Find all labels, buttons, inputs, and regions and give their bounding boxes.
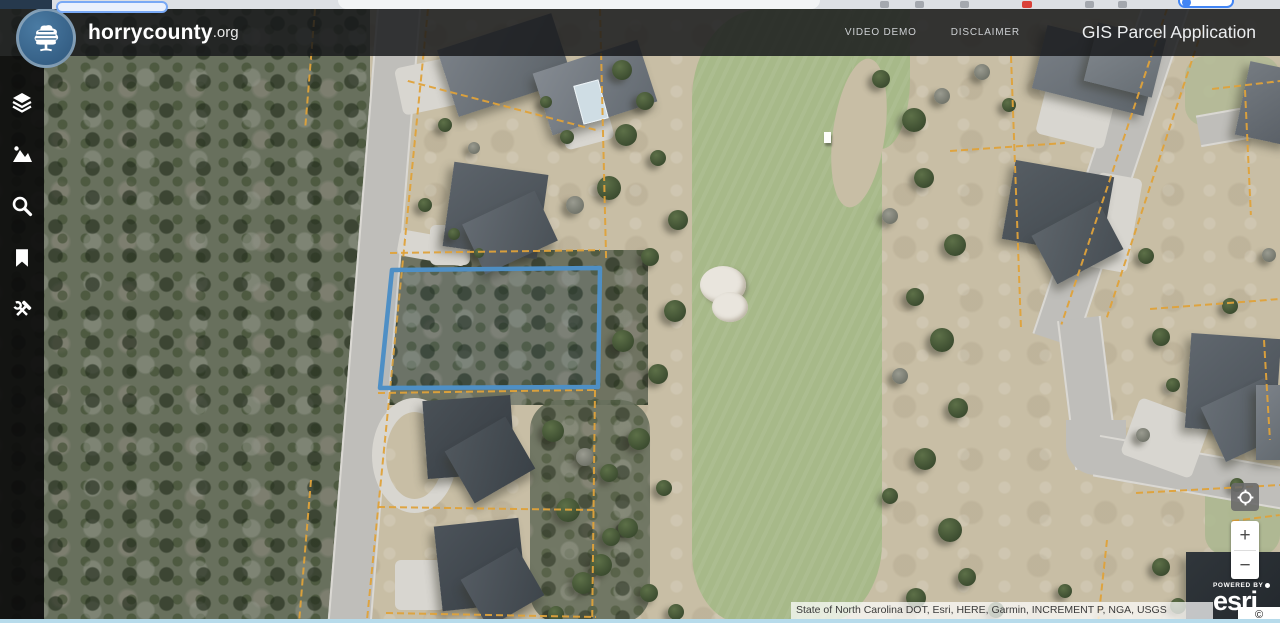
nav-video-demo[interactable]: VIDEO DEMO	[845, 27, 917, 38]
brand-name: horrycounty	[88, 21, 213, 45]
browser-extension-icon[interactable]	[915, 1, 924, 8]
locate-icon	[1237, 489, 1254, 506]
map-attribution: State of North Carolina DOT, Esri, HERE,…	[791, 602, 1213, 619]
selected-parcel-outline[interactable]	[370, 245, 610, 400]
browser-tab-pill[interactable]	[56, 1, 168, 13]
tools-icon	[10, 298, 34, 322]
zoom-in-button[interactable]: +	[1231, 521, 1259, 550]
profile-dot-icon	[1182, 0, 1191, 7]
globe-dot-icon	[1265, 583, 1270, 588]
browser-extension-icon[interactable]	[1022, 1, 1032, 8]
sidebar-tool-bookmarks[interactable]	[0, 238, 44, 278]
browser-extension-icon[interactable]	[960, 1, 969, 8]
brand[interactable]: horrycounty.org	[88, 9, 239, 56]
basemap-icon	[10, 142, 34, 166]
browser-tab-edge	[0, 0, 52, 9]
sidebar-tool-utilities[interactable]	[0, 290, 44, 330]
header-nav: VIDEO DEMO DISCLAIMER GIS Parcel Applica…	[845, 9, 1256, 56]
browser-extension-icon[interactable]	[1085, 1, 1094, 8]
layers-icon	[10, 90, 34, 114]
sidebar-tool-layers[interactable]	[0, 82, 44, 122]
browser-toolbar-sliver	[0, 0, 1280, 9]
golf-cart	[824, 132, 831, 143]
map-canvas[interactable]	[0, 9, 1280, 623]
gis-parcel-application: horrycounty.org VIDEO DEMO DISCLAIMER GI…	[0, 0, 1280, 623]
nav-disclaimer[interactable]: DISCLAIMER	[951, 27, 1020, 38]
bookmark-icon	[11, 246, 33, 270]
app-header: horrycounty.org VIDEO DEMO DISCLAIMER GI…	[0, 9, 1280, 56]
oak-tree-icon	[27, 19, 65, 57]
sidebar-tool-search[interactable]	[0, 186, 44, 226]
browser-address-bar[interactable]	[338, 0, 820, 9]
horry-county-logo[interactable]	[16, 8, 76, 68]
tool-sidebar	[0, 56, 44, 623]
browser-extension-icon[interactable]	[880, 1, 889, 8]
browser-profile-pill[interactable]	[1178, 0, 1234, 8]
search-icon	[10, 194, 34, 218]
sidebar-tool-basemap[interactable]	[0, 134, 44, 174]
viewport-bottom-edge	[0, 619, 1280, 623]
zoom-control: + −	[1231, 521, 1259, 579]
forest-west	[0, 9, 370, 623]
brand-suffix: .org	[213, 24, 239, 41]
locate-button[interactable]	[1231, 483, 1259, 511]
browser-menu-icon[interactable]	[1118, 1, 1127, 8]
sand-bunker	[712, 292, 748, 322]
page-title: GIS Parcel Application	[1082, 22, 1256, 43]
zoom-out-button[interactable]: −	[1231, 551, 1259, 580]
